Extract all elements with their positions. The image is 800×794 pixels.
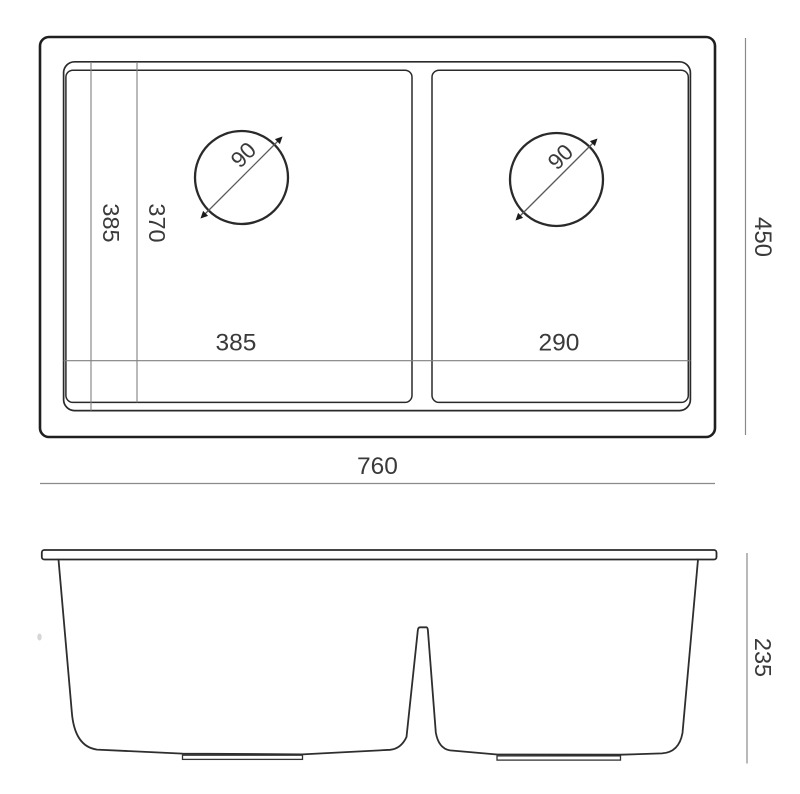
svg-text:235: 235 bbox=[750, 638, 776, 677]
svg-text:385: 385 bbox=[216, 330, 257, 357]
svg-text:450: 450 bbox=[749, 217, 776, 257]
svg-text:385: 385 bbox=[98, 203, 124, 242]
svg-text:760: 760 bbox=[357, 453, 398, 480]
svg-text:290: 290 bbox=[539, 330, 580, 357]
svg-text:370: 370 bbox=[144, 203, 170, 242]
